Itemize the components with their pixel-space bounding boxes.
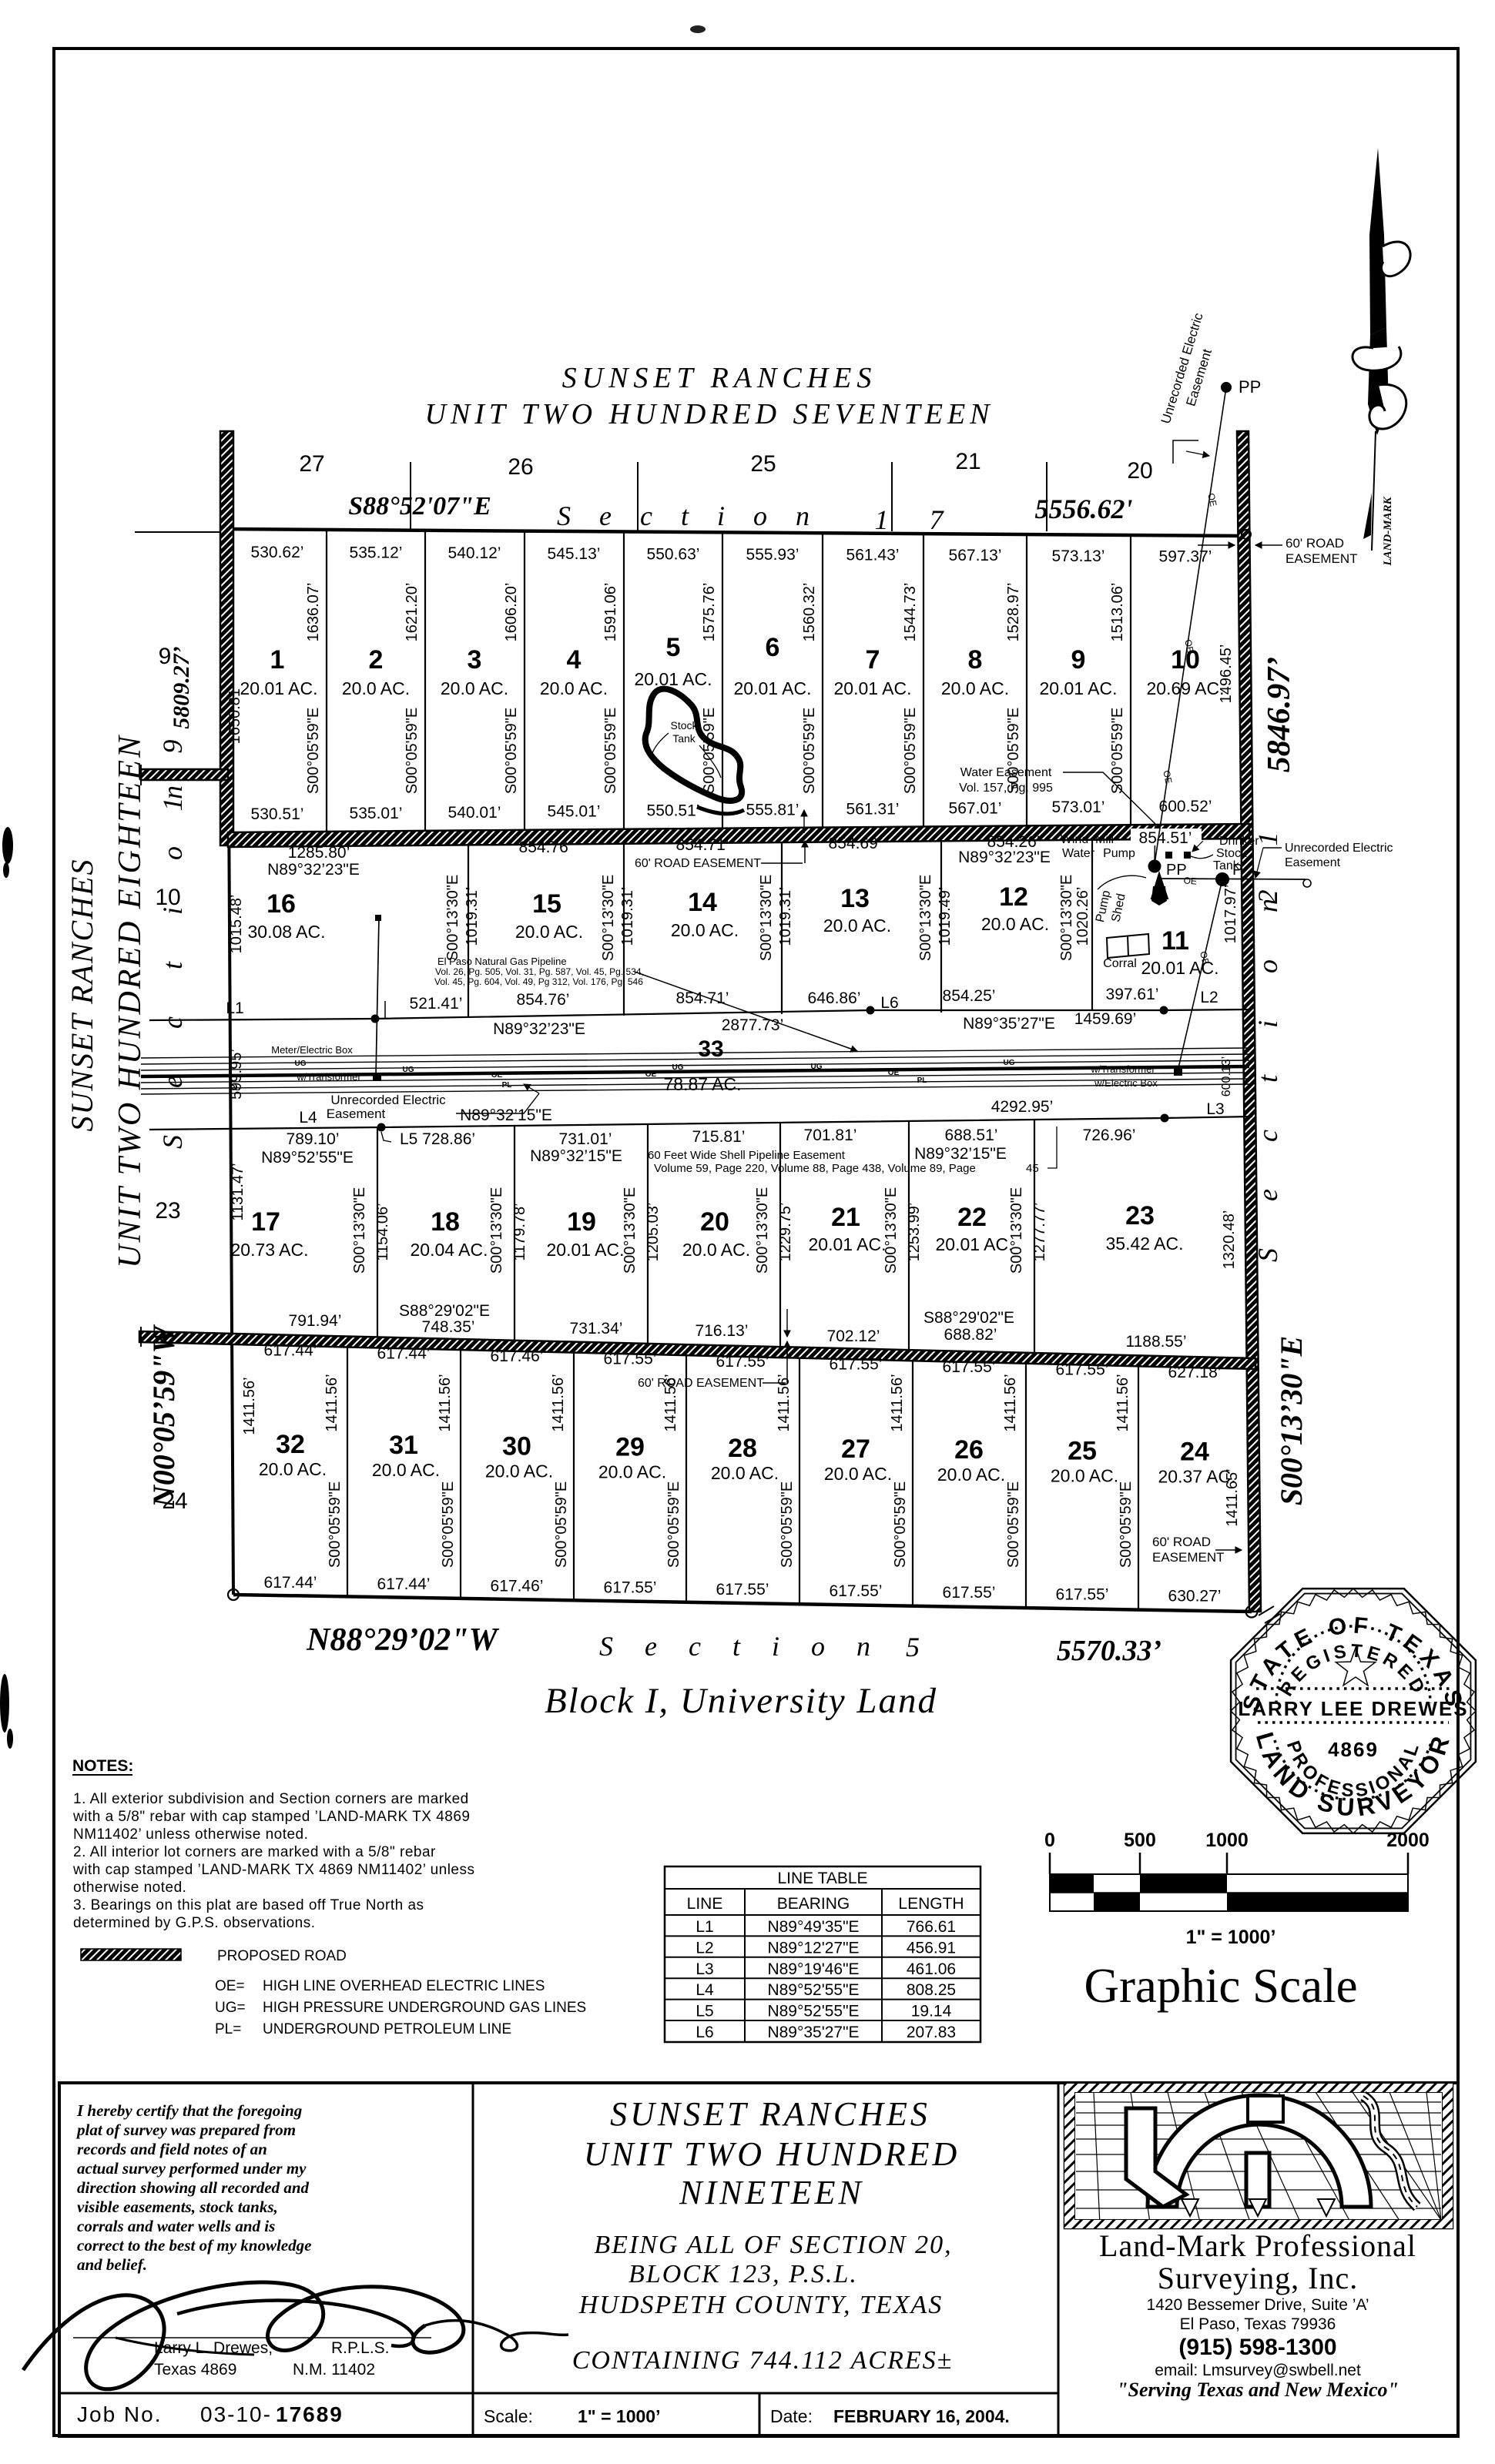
svg-text:716.13’: 716.13’ [696,1322,749,1340]
svg-text:Graphic Scale: Graphic Scale [1084,1959,1357,2013]
svg-text:w/Electric Box: w/Electric Box [1094,1077,1158,1089]
svg-text:1650.81’: 1650.81’ [226,685,243,745]
svg-text:Vol. 45, Pg. 604, Vol. 49, Pg: Vol. 45, Pg. 604, Vol. 49, Pg 312, Vol. … [434,976,643,987]
svg-text:N.M. 11402: N.M. 11402 [293,2361,375,2379]
svg-text:(915) 598-1300: (915) 598-1300 [1178,2335,1336,2360]
svg-text:20.0 AC.: 20.0 AC. [671,920,739,940]
svg-text:S88°29'02"E: S88°29'02"E [923,1309,1014,1327]
svg-text:EASEMENT: EASEMENT [1285,551,1358,566]
svg-text:20.01 AC.: 20.01 AC. [733,678,811,698]
svg-text:corrals and water wells and is: corrals and water wells and is [77,2217,275,2235]
svg-text:535.12’: 535.12’ [350,544,403,562]
svg-text:5809.27’: 5809.27’ [169,646,194,729]
svg-text:1. All exterior subdivision an: 1. All exterior subdivision and Section … [73,1791,469,1807]
svg-text:1179.78’: 1179.78’ [511,1203,528,1260]
svg-text:1" = 1000’: 1" = 1000’ [1186,1927,1276,1948]
svg-text:BLOCK 123, P.S.L.: BLOCK 123, P.S.L. [629,2260,858,2288]
svg-text:Larry L. Drewes,: Larry L. Drewes, [154,2339,273,2357]
svg-text:S00°13'30"E: S00°13'30"E [351,1187,368,1274]
svg-text:808.25: 808.25 [907,1981,956,1999]
svg-text:S e c t i o n: S e c t i o n [599,1631,883,1662]
svg-text:26: 26 [508,454,533,480]
svg-text:27: 27 [299,451,324,477]
svg-text:617.46’: 617.46’ [491,1347,544,1365]
svg-text:S00°05'59"E: S00°05'59"E [801,708,818,794]
svg-text:20.0 AC.: 20.0 AC. [540,678,608,698]
svg-text:19.14: 19.14 [911,2003,952,2020]
svg-text:SUNSET RANCHES: SUNSET RANCHES [65,858,99,1131]
svg-text:UG: UG [811,1063,823,1071]
svg-text:3: 3 [468,645,482,675]
svg-text:20.04 AC.: 20.04 AC. [410,1240,488,1260]
svg-text:N89°32’15"E: N89°32’15"E [914,1145,1007,1163]
svg-text:25: 25 [1068,1436,1097,1465]
svg-text:L6: L6 [880,994,898,1012]
svg-text:1575.76’: 1575.76’ [701,583,718,642]
svg-text:15: 15 [532,889,561,919]
svg-text:Meter/Electric Box: Meter/Electric Box [271,1044,353,1056]
svg-text:22: 22 [957,1203,987,1232]
svg-text:20.0 AC.: 20.0 AC. [372,1460,440,1480]
svg-text:748.35’: 748.35’ [422,1318,475,1336]
svg-text:24: 24 [1180,1438,1209,1467]
svg-text:S00°05'59"E: S00°05'59"E [602,708,619,794]
svg-text:13: 13 [840,884,870,913]
svg-text:854.76’: 854.76’ [519,839,572,856]
svg-text:L6: L6 [696,2024,713,2041]
svg-text:20.0 AC.: 20.0 AC. [711,1463,779,1483]
svg-text:545.01’: 545.01’ [548,803,601,821]
svg-text:701.81’: 701.81’ [804,1127,857,1144]
svg-text:1420 Bessemer Drive, Suite ’A’: 1420 Bessemer Drive, Suite ’A’ [1146,2296,1369,2314]
svg-text:5556.62': 5556.62' [1034,494,1132,524]
svg-text:UG: UG [403,1066,414,1074]
svg-text:OE=: OE= [215,1978,245,1994]
svg-text:N89°32’23"E: N89°32’23"E [267,861,360,879]
svg-text:S00°05'59"E: S00°05'59"E [1005,1481,1022,1568]
svg-text:600.52’: 600.52’ [1159,798,1212,815]
svg-text:1411.56’: 1411.56’ [889,1374,906,1431]
svg-text:EASEMENT: EASEMENT [1152,1550,1225,1565]
svg-text:555.93’: 555.93’ [746,546,799,564]
svg-text:535.01’: 535.01’ [350,805,403,822]
svg-text:9: 9 [1071,645,1086,675]
svg-text:20.01 AC.: 20.01 AC. [1039,678,1117,698]
svg-text:Pump: Pump [1103,847,1135,860]
svg-text:S00°05'59"E: S00°05'59"E [892,1481,909,1568]
svg-text:854.51’: 854.51’ [1139,829,1192,847]
svg-text:P: P [1232,862,1242,879]
svg-text:BEING ALL OF SECTION 20,: BEING ALL OF SECTION 20, [594,2231,952,2259]
svg-text:1411.65’: 1411.65’ [1224,1468,1241,1526]
svg-text:BEARING: BEARING [777,1895,850,1913]
svg-text:7: 7 [866,645,880,675]
svg-text:NM11402’ unless otherwise note: NM11402’ unless otherwise noted. [73,1826,308,1843]
svg-text:S00°13'30"E: S00°13'30"E [754,1187,771,1274]
svg-text:600.13’: 600.13’ [1220,1056,1233,1097]
svg-text:20.73 AC.: 20.73 AC. [230,1240,308,1260]
svg-text:20.01 AC.: 20.01 AC. [634,669,712,689]
svg-text:PL=: PL= [215,2021,241,2037]
svg-text:L4: L4 [299,1109,317,1127]
svg-text:Vol. 157, Pg. 995: Vol. 157, Pg. 995 [959,782,1053,795]
svg-text:S00°13'30"E: S00°13'30"E [622,1187,639,1274]
svg-text:78.87 AC.: 78.87 AC. [663,1074,741,1094]
svg-text:20.0 AC.: 20.0 AC. [981,914,1049,934]
svg-text:Surveying, Inc.: Surveying, Inc. [1158,2261,1359,2295]
svg-text:I hereby certify that the fore: I hereby certify that the foregoing [76,2101,302,2120]
svg-text:1019.31’: 1019.31’ [777,887,794,946]
svg-text:Wind: Wind [1061,833,1088,846]
svg-text:731.01’: 731.01’ [559,1130,612,1148]
svg-text:617.55’: 617.55’ [604,1350,657,1368]
svg-text:8: 8 [968,645,983,675]
svg-text:UNIT TWO HUNDRED EIGHTEEN: UNIT TWO HUNDRED EIGHTEEN [112,734,148,1268]
svg-text:854.25’: 854.25’ [943,987,996,1005]
svg-text:45: 45 [1026,1162,1039,1175]
svg-text:L1: L1 [696,1918,713,1936]
svg-text:L3: L3 [1206,1100,1224,1118]
svg-text:SUNSET RANCHES: SUNSET RANCHES [610,2095,930,2133]
svg-text:1560.32’: 1560.32’ [801,583,818,642]
svg-text:26: 26 [954,1435,984,1465]
svg-text:5: 5 [666,633,681,662]
svg-text:OE: OE [888,1069,900,1077]
svg-text:4292.95’: 4292.95’ [991,1098,1054,1116]
svg-text:1015.48’: 1015.48’ [228,895,245,954]
svg-text:630.27’: 630.27’ [1168,1588,1222,1605]
svg-text:573.01’: 573.01’ [1052,798,1105,816]
svg-text:S00°05'59"E: S00°05'59"E [440,1481,457,1568]
svg-text:N89°52'55"E: N89°52'55"E [767,1981,859,1999]
svg-text:17689: 17689 [276,2402,344,2426]
svg-text:1513.06’: 1513.06’ [1109,583,1126,642]
svg-text:S00°13'30"E: S00°13'30"E [444,875,461,961]
svg-text:1496.45’: 1496.45’ [1218,644,1235,704]
svg-text:20.01 AC.: 20.01 AC. [240,678,317,698]
svg-text:1019.49’: 1019.49’ [937,887,954,946]
svg-text:20: 20 [1127,458,1152,484]
svg-text:20.0 AC.: 20.0 AC. [598,1462,666,1482]
svg-text:S00°05'59"E: S00°05'59"E [305,708,322,794]
svg-text:plat of survey was prepared fr: plat of survey was prepared from [75,2121,296,2139]
svg-text:702.12’: 702.12’ [827,1327,880,1345]
svg-text:530.62’: 530.62’ [251,544,304,561]
svg-text:19: 19 [567,1207,596,1237]
svg-text:555.81’: 555.81’ [746,802,799,819]
svg-text:726.96’: 726.96’ [1083,1127,1136,1144]
svg-text:actual survey performed under: actual survey performed under my [77,2159,307,2178]
svg-text:UG: UG [1004,1059,1015,1067]
svg-text:567.01’: 567.01’ [949,799,1002,817]
svg-text:10: 10 [155,885,180,910]
svg-text:S00°05'59"E: S00°05'59"E [327,1481,344,1568]
svg-text:30: 30 [502,1431,531,1461]
svg-text:PROPOSED ROAD: PROPOSED ROAD [217,1948,347,1964]
svg-text:R.P.L.S.: R.P.L.S. [331,2339,390,2357]
svg-text:N00°05’59"W: N00°05’59"W [146,1324,181,1508]
svg-text:27: 27 [841,1435,870,1464]
svg-text:60' ROAD: 60' ROAD [1152,1535,1211,1549]
svg-text:CONTAINING 744.112 ACRES±: CONTAINING 744.112 ACRES± [572,2346,954,2375]
svg-text:1411.56’: 1411.56’ [437,1374,454,1431]
svg-text:Unrecorded Electric: Unrecorded Electric [330,1093,446,1107]
svg-text:N88°29’02"W: N88°29’02"W [306,1622,499,1658]
svg-text:determined by G.P.S. observati: determined by G.P.S. observations. [73,1915,315,1931]
svg-text:S00°13’30"E: S00°13’30"E [1274,1336,1309,1505]
svg-text:Stock: Stock [670,719,698,731]
svg-text:records and field notes of an: records and field notes of an [77,2140,267,2158]
svg-text:1" = 1000’: 1" = 1000’ [578,2406,660,2426]
svg-text:617.55’: 617.55’ [1056,1361,1109,1379]
svg-text:617.55’: 617.55’ [830,1355,883,1373]
svg-text:L2: L2 [696,1939,713,1957]
svg-text:31: 31 [389,1431,418,1460]
svg-text:S e c t i o n: S e c t i o n [1252,879,1283,1262]
svg-text:S00°05'59"E: S00°05'59"E [779,1481,796,1568]
svg-text:L3: L3 [696,1960,713,1978]
svg-text:Scale:: Scale: [484,2406,533,2426]
svg-text:18: 18 [431,1207,460,1237]
svg-text:1 9: 1 9 [157,721,188,812]
svg-text:email: Lmsurvey@swbell.net: email: Lmsurvey@swbell.net [1155,2362,1361,2379]
svg-text:S e c t i o n: S e c t i o n [557,500,820,531]
svg-text:461.06: 461.06 [907,1960,956,1978]
svg-text:correct to the best of my know: correct to the best of my knowledge [77,2236,311,2255]
svg-text:Texas 4869: Texas 4869 [154,2361,236,2379]
svg-text:30.08 AC.: 30.08 AC. [247,922,325,942]
svg-text:1285.80’: 1285.80’ [288,844,350,862]
svg-text:"Serving Texas and New Mexico": "Serving Texas and New Mexico" [1117,2379,1399,2401]
svg-text:617.55’: 617.55’ [943,1584,996,1602]
svg-text:397.61’: 397.61’ [1106,986,1159,1003]
svg-text:LARRY LEE DREWES: LARRY LEE DREWES [1238,1697,1468,1720]
svg-text:1411.56’: 1411.56’ [241,1377,258,1435]
svg-text:20.0 AC.: 20.0 AC. [515,922,583,942]
svg-text:FEBRUARY 16, 2004.: FEBRUARY 16, 2004. [833,2406,1010,2426]
svg-text:1188.55’: 1188.55’ [1125,1333,1186,1351]
svg-text:23: 23 [1125,1201,1155,1230]
svg-text:S00°05'59"E: S00°05'59"E [553,1481,570,1568]
svg-text:617.55’: 617.55’ [716,1581,769,1599]
svg-text:OE: OE [491,1071,503,1080]
svg-text:550.51’: 550.51’ [647,802,700,820]
svg-text:S00°13'30"E: S00°13'30"E [883,1187,900,1274]
svg-text:530.51’: 530.51’ [251,805,304,823]
svg-text:S00°13'30"E: S00°13'30"E [600,875,617,961]
svg-text:617.55’: 617.55’ [716,1353,769,1371]
svg-text:1229.75’: 1229.75’ [777,1203,794,1262]
svg-text:Drinker: Drinker [1219,835,1259,848]
svg-text:Date:: Date: [770,2406,813,2426]
svg-text:500: 500 [1124,1830,1156,1851]
svg-text:1253.99’: 1253.99’ [906,1203,923,1262]
svg-text:1544.73’: 1544.73’ [902,583,919,642]
svg-text:1017.97’: 1017.97’ [1222,885,1239,944]
svg-text:N89°32’23"E: N89°32’23"E [493,1020,585,1038]
svg-text:Easement: Easement [1285,856,1341,869]
svg-text:854.71’: 854.71’ [676,836,729,854]
svg-text:791.94’: 791.94’ [289,1312,342,1330]
svg-text:3. Bearings on this plat are b: 3. Bearings on this plat are based off T… [73,1897,424,1913]
svg-text:854.76’: 854.76’ [517,991,570,1009]
svg-text:1: 1 [270,645,285,675]
svg-text:12: 12 [999,882,1028,912]
svg-text:789.10’: 789.10’ [287,1130,340,1148]
svg-text:S e c t i o n: S e c t i o n [157,765,188,1149]
svg-text:PL: PL [502,1081,512,1090]
svg-text:23: 23 [155,1198,180,1224]
svg-text:17: 17 [251,1207,280,1237]
svg-text:Tank: Tank [672,732,696,745]
svg-text:20.01 AC.: 20.01 AC. [833,678,911,698]
svg-text:visible easements, stock tanks: visible easements, stock tanks, [77,2198,278,2216]
svg-text:2: 2 [369,645,384,675]
svg-text:60' ROAD EASEMENT: 60' ROAD EASEMENT [638,1377,764,1390]
svg-text:540.12’: 540.12’ [448,544,501,562]
svg-text:HUDSPETH COUNTY, TEXAS: HUDSPETH COUNTY, TEXAS [578,2291,944,2319]
svg-text:731.34’: 731.34’ [570,1320,623,1337]
svg-text:Corral: Corral [1103,957,1137,970]
svg-text:20.0 AC.: 20.0 AC. [941,678,1009,698]
svg-text:N89°49'35"E: N89°49'35"E [767,1918,859,1936]
svg-text:20.0 AC.: 20.0 AC. [823,916,891,936]
svg-text:28: 28 [728,1434,757,1463]
svg-text:25: 25 [750,451,776,477]
svg-text:16: 16 [266,889,296,919]
svg-text:OE: OE [1183,875,1197,886]
svg-text:20: 20 [700,1207,729,1237]
svg-text:545.13’: 545.13’ [548,545,601,563]
svg-text:and belief.: and belief. [77,2255,147,2274]
svg-text:20.69 AC.: 20.69 AC. [1146,678,1224,698]
svg-text:2877.73’: 2877.73’ [722,1016,784,1034]
svg-text:6: 6 [766,633,780,662]
svg-text:Mill: Mill [1095,833,1114,846]
svg-text:5846.97’: 5846.97’ [1262,657,1297,773]
svg-text:S00°05'59"E: S00°05'59"E [1118,1481,1135,1568]
svg-text:UNDERGROUND PETROLEUM LINE: UNDERGROUND PETROLEUM LINE [263,2021,511,2037]
svg-text:617.44’: 617.44’ [377,1344,431,1362]
svg-text:20.0 AC.: 20.0 AC. [1051,1465,1118,1485]
svg-text:L1: L1 [226,999,243,1017]
svg-text:20.01 AC.: 20.01 AC. [935,1234,1013,1254]
svg-text:20.0 AC.: 20.0 AC. [485,1461,553,1481]
svg-text:w/Transformer: w/Transformer [1090,1063,1155,1075]
svg-text:1277.77’: 1277.77’ [1031,1203,1048,1262]
svg-text:1411.56’: 1411.56’ [1115,1374,1131,1431]
svg-text:S00°05'59"E: S00°05'59"E [503,708,520,794]
svg-text:20.0 AC.: 20.0 AC. [937,1465,1005,1485]
svg-text:597.37’: 597.37’ [1159,547,1212,565]
svg-text:0: 0 [1044,1830,1055,1851]
svg-text:S00°13'30"E: S00°13'30"E [1008,1187,1025,1274]
svg-text:1636.07’: 1636.07’ [305,583,322,642]
svg-text:1 7: 1 7 [875,504,960,535]
svg-text:688.82’: 688.82’ [944,1326,997,1344]
svg-text:854.71’: 854.71’ [676,989,729,1007]
svg-text:03-10-: 03-10- [200,2402,272,2426]
svg-text:LAND-MARK: LAND-MARK [1382,496,1394,566]
svg-text:29: 29 [615,1433,645,1462]
svg-text:21: 21 [831,1203,860,1232]
svg-text:20.01 AC.: 20.01 AC. [546,1240,624,1260]
svg-text:646.86’: 646.86’ [808,989,861,1007]
svg-text:1591.06’: 1591.06’ [602,583,619,642]
svg-text:766.61: 766.61 [907,1918,956,1936]
svg-text:LINE TABLE: LINE TABLE [777,1870,867,1887]
svg-text:20.0 AC.: 20.0 AC. [682,1240,750,1260]
svg-text:1020.26’: 1020.26’ [1074,887,1091,946]
svg-text:LENGTH: LENGTH [898,1895,964,1913]
svg-text:Land-Mark Professional: Land-Mark Professional [1099,2228,1416,2263]
svg-text:N89°12'27"E: N89°12'27"E [767,1939,859,1957]
svg-text:N89°35'27"E: N89°35'27"E [767,2024,859,2041]
svg-text:1606.20’: 1606.20’ [503,583,520,642]
svg-text:N89°35’27"E: N89°35’27"E [963,1015,1055,1033]
svg-text:561.43’: 561.43’ [846,547,900,564]
svg-text:20.0 AC.: 20.0 AC. [342,678,410,698]
svg-text:HIGH PRESSURE UNDERGROUND GAS: HIGH PRESSURE UNDERGROUND GAS LINES [263,2000,586,2016]
svg-text:20.0 AC.: 20.0 AC. [441,678,508,698]
svg-text:S00°05'59"E: S00°05'59"E [902,708,919,794]
svg-text:1411.56’: 1411.56’ [550,1374,567,1431]
svg-text:617.55’: 617.55’ [830,1582,883,1600]
svg-text:El Paso, Texas 79936: El Paso, Texas 79936 [1180,2315,1336,2333]
svg-text:32: 32 [276,1430,305,1459]
svg-text:PL: PL [917,1076,927,1085]
svg-text:5: 5 [906,1632,920,1662]
svg-text:N89°19'46"E: N89°19'46"E [767,1960,859,1978]
svg-text:21: 21 [955,449,980,474]
svg-text:60 Feet Wide Shell Pipeline Ea: 60 Feet Wide Shell Pipeline Easement [648,1149,846,1162]
svg-text:NOTES:: NOTES: [72,1757,133,1775]
svg-text:550.63’: 550.63’ [647,545,700,563]
svg-text:60' ROAD EASEMENT: 60' ROAD EASEMENT [635,857,761,870]
svg-text:573.13’: 573.13’ [1052,547,1105,565]
svg-text:1205.03’: 1205.03’ [645,1203,662,1262]
svg-text:521.41’: 521.41’ [410,995,463,1013]
svg-text:L5 728.86’: L5 728.86’ [400,1130,475,1148]
svg-text:1320.48’: 1320.48’ [1221,1210,1238,1270]
svg-text:1621.20’: 1621.20’ [404,583,421,642]
svg-text:20.01 AC.: 20.01 AC. [808,1234,886,1254]
svg-text:UG=: UG= [215,2000,246,2016]
svg-text:540.01’: 540.01’ [448,804,501,822]
svg-text:S88°52'07"E: S88°52'07"E [348,492,491,521]
svg-text:L5: L5 [696,2003,713,2020]
svg-text:60' ROAD: 60' ROAD [1285,536,1344,551]
svg-text:Water Easement: Water Easement [960,766,1052,779]
svg-text:617.55’: 617.55’ [943,1358,996,1376]
svg-text:Water: Water [1062,847,1095,860]
svg-text:1000: 1000 [1205,1830,1249,1851]
svg-text:with cap stamped ’LAND-MARK TX: with cap stamped ’LAND-MARK TX 4869 NM11… [72,1862,475,1878]
svg-text:S00°13'30"E: S00°13'30"E [758,875,775,961]
svg-text:PL: PL [230,1084,240,1093]
svg-text:1411.56’: 1411.56’ [323,1374,340,1431]
svg-text:N89°32’23"E: N89°32’23"E [958,849,1051,866]
svg-text:1411.56’: 1411.56’ [1002,1374,1019,1431]
svg-text:33: 33 [698,1036,723,1062]
svg-text:S00°05'59"E: S00°05'59"E [665,1481,682,1568]
svg-text:11: 11 [1161,926,1189,956]
svg-text:UG: UG [295,1060,307,1068]
svg-text:UNIT TWO HUNDRED: UNIT TWO HUNDRED [584,2135,960,2173]
svg-text:2 1: 2 1 [1252,814,1283,904]
svg-text:2. All interior lot corners ar: 2. All interior lot corners are marked w… [73,1844,436,1860]
svg-text:207.83: 207.83 [907,2024,956,2041]
